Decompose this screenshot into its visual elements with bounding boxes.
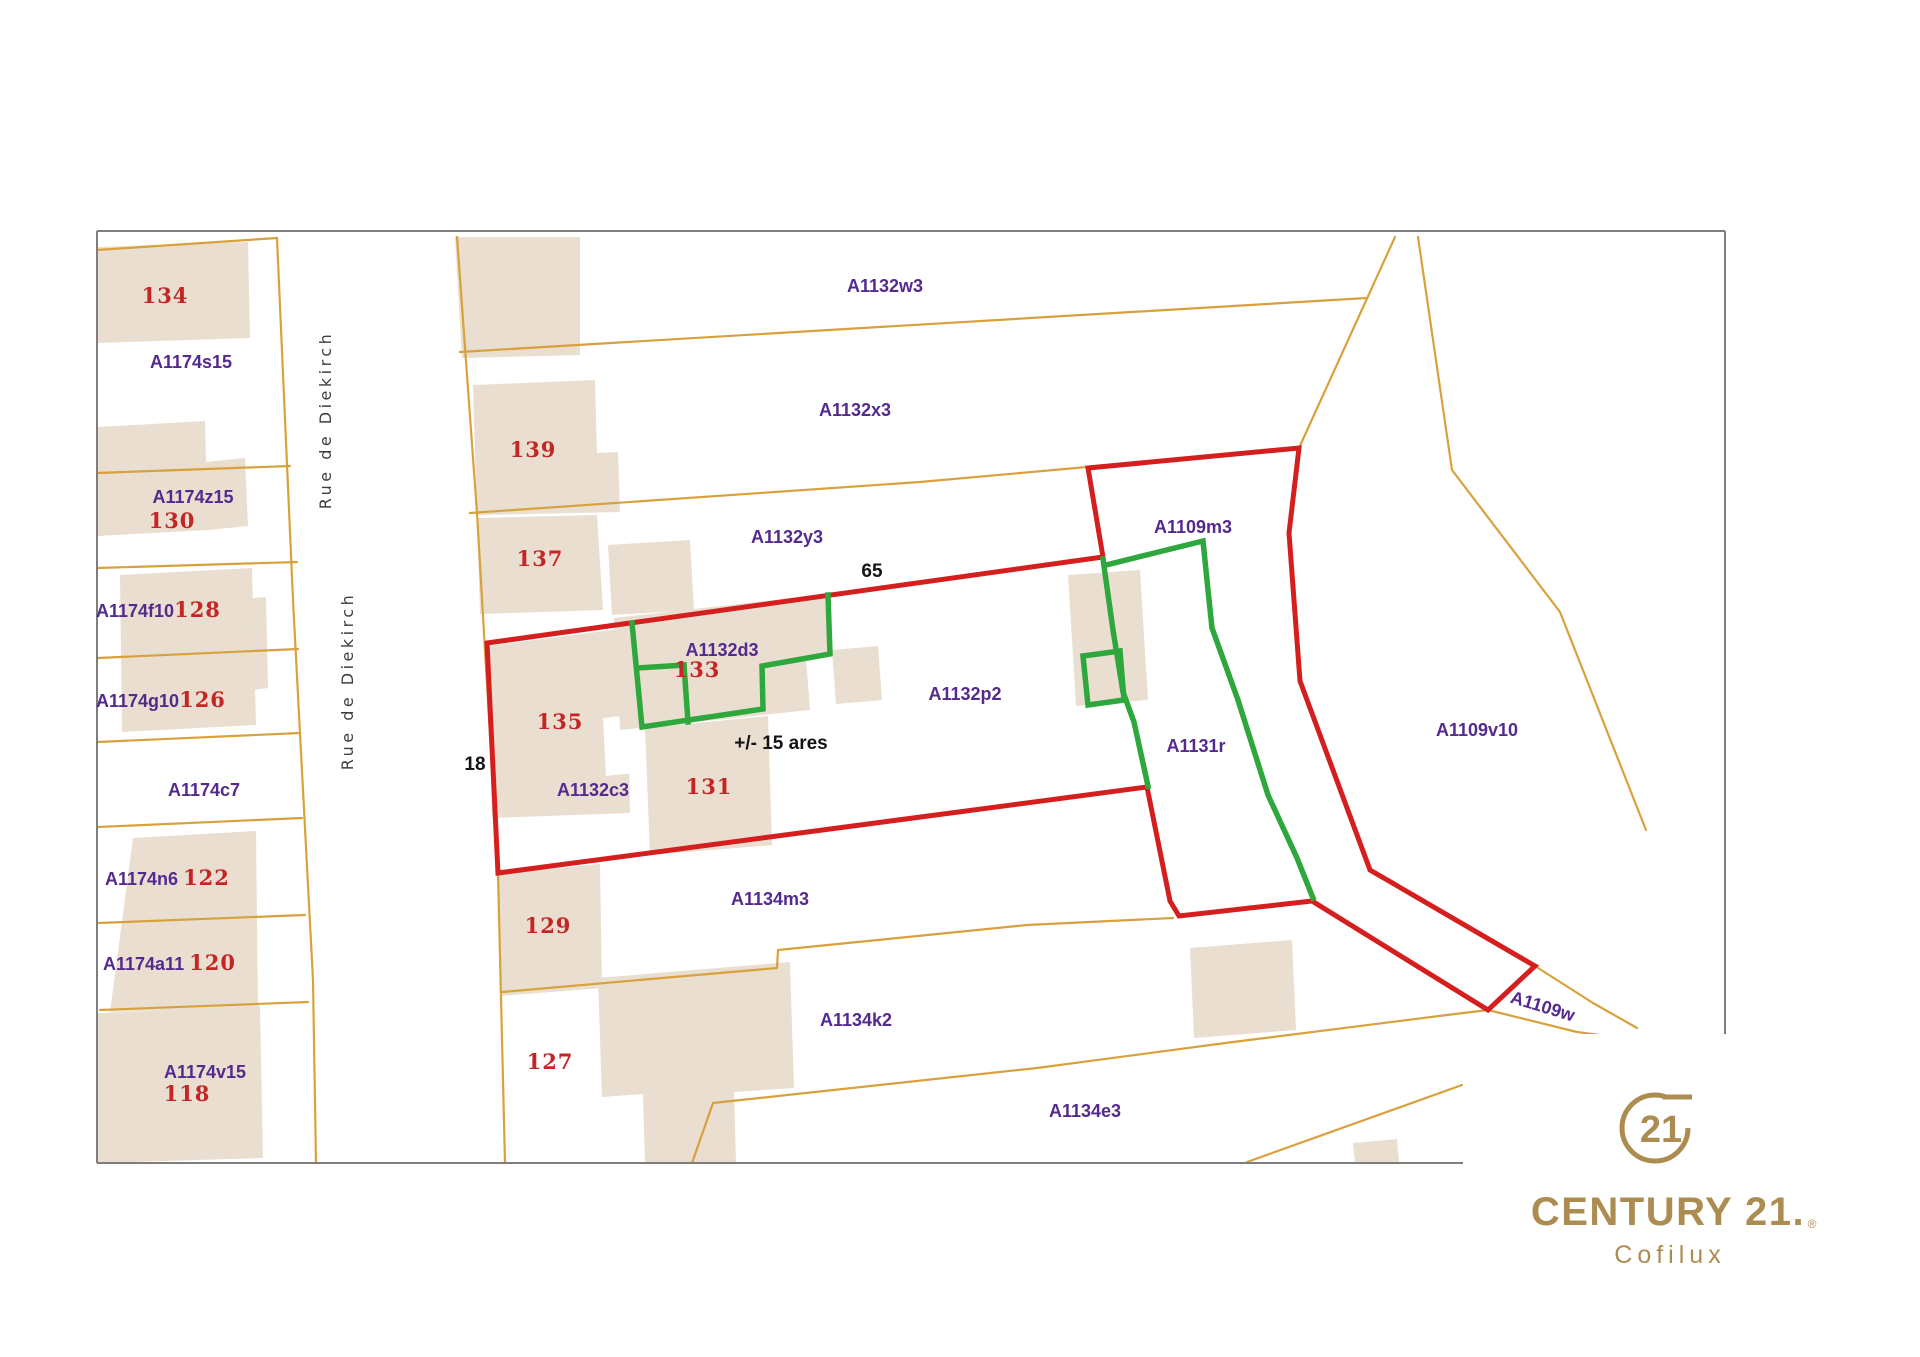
parcel-label-a1132p2: A1132p2 — [928, 684, 1001, 704]
parcel-label-a1134k2: A1134k2 — [820, 1010, 892, 1030]
house-number-135: 135 — [537, 709, 584, 734]
parcel-boundary-line — [460, 298, 1367, 352]
seal-number: 21 — [1640, 1109, 1682, 1151]
agency-name: Cofilux — [1614, 1241, 1725, 1269]
parcel-label-a1109w: A1109w — [1508, 987, 1578, 1026]
house-number-128: 128 — [174, 597, 221, 622]
parcel-label-a1174f10: A1174f10128 — [96, 597, 221, 622]
building-footprint — [1353, 1139, 1399, 1163]
map-corner-cutout — [1464, 1034, 1727, 1169]
house-number-118: 118 — [164, 1081, 211, 1106]
parcel-boundary-line — [98, 818, 302, 827]
house-number-133: 133 — [674, 657, 721, 682]
parcel-label-a1109m3: A1109m3 — [1154, 517, 1232, 537]
building-footprint — [598, 962, 794, 1164]
building-footprint — [832, 646, 882, 704]
buildings-layer — [98, 237, 1399, 1164]
parcel-label-a1134m3: A1134m3 — [731, 889, 809, 909]
cadastral-map-page: 134 A1174s15 A1174z15 130 A1174f10128 A1… — [0, 0, 1920, 1357]
house-number-120: 120 — [189, 950, 236, 975]
parcel-label-a1109v10: A1109v10 — [1436, 720, 1518, 740]
house-number-134: 134 — [142, 283, 189, 308]
parcel-label-a1174n6: A1174n6 122 — [105, 865, 230, 890]
parcel-label-a1131r: A1131r — [1166, 736, 1225, 756]
parcel-label-a1132w3: A1132w3 — [847, 276, 923, 296]
century21-wordmark: CENTURY 21. — [1531, 1190, 1805, 1234]
street-name-lower: Rue de Diekirch — [338, 592, 357, 771]
parcel-boundary-line — [97, 562, 297, 568]
street-name-upper: Rue de Diekirch — [316, 331, 335, 510]
house-number-130: 130 — [149, 508, 196, 533]
parcel-label-a1174g10: A1174g10126 — [96, 687, 226, 712]
street-west-edge — [277, 238, 316, 1163]
house-number-137: 137 — [517, 546, 564, 571]
parcel-label-a1132c3: A1132c3 — [557, 780, 629, 800]
house-number-127: 127 — [527, 1049, 574, 1074]
cadastral-map: 134 A1174s15 A1174z15 130 A1174f10128 A1… — [0, 0, 1920, 1357]
building-footprint — [252, 597, 268, 690]
area-annotation: +/- 15 ares — [734, 733, 828, 754]
length-annotation-top: 65 — [861, 561, 883, 582]
house-number-139: 139 — [510, 437, 557, 462]
building-footprint — [1190, 940, 1296, 1038]
building-footprint — [608, 540, 694, 615]
parcel-label-a1174z15: A1174z15 — [152, 487, 233, 507]
parcel-label-a1174v15: A1174v15 — [164, 1062, 246, 1082]
house-number-122: 122 — [183, 865, 230, 890]
house-number-129: 129 — [525, 913, 572, 938]
parcel-label-a1132y3: A1132y3 — [751, 527, 823, 547]
house-number-131: 131 — [686, 774, 733, 799]
length-annotation-left: 18 — [464, 754, 485, 775]
parcel-label-a1132x3: A1132x3 — [819, 400, 891, 420]
parcel-label-a1174c7: A1174c7 — [168, 780, 240, 800]
building-footprint — [455, 237, 580, 358]
parcel-boundary-line — [1418, 237, 1646, 830]
parcel-label-a1174s15: A1174s15 — [150, 352, 232, 372]
parcel-boundary-line — [98, 733, 300, 742]
parcel-boundary-line — [1299, 237, 1395, 448]
house-number-126: 126 — [179, 687, 226, 712]
parcel-label-a1174a11: A1174a11 120 — [103, 950, 236, 975]
registered-mark: ® — [1808, 1217, 1817, 1231]
parcel-label-a1134e3: A1134e3 — [1049, 1101, 1121, 1121]
